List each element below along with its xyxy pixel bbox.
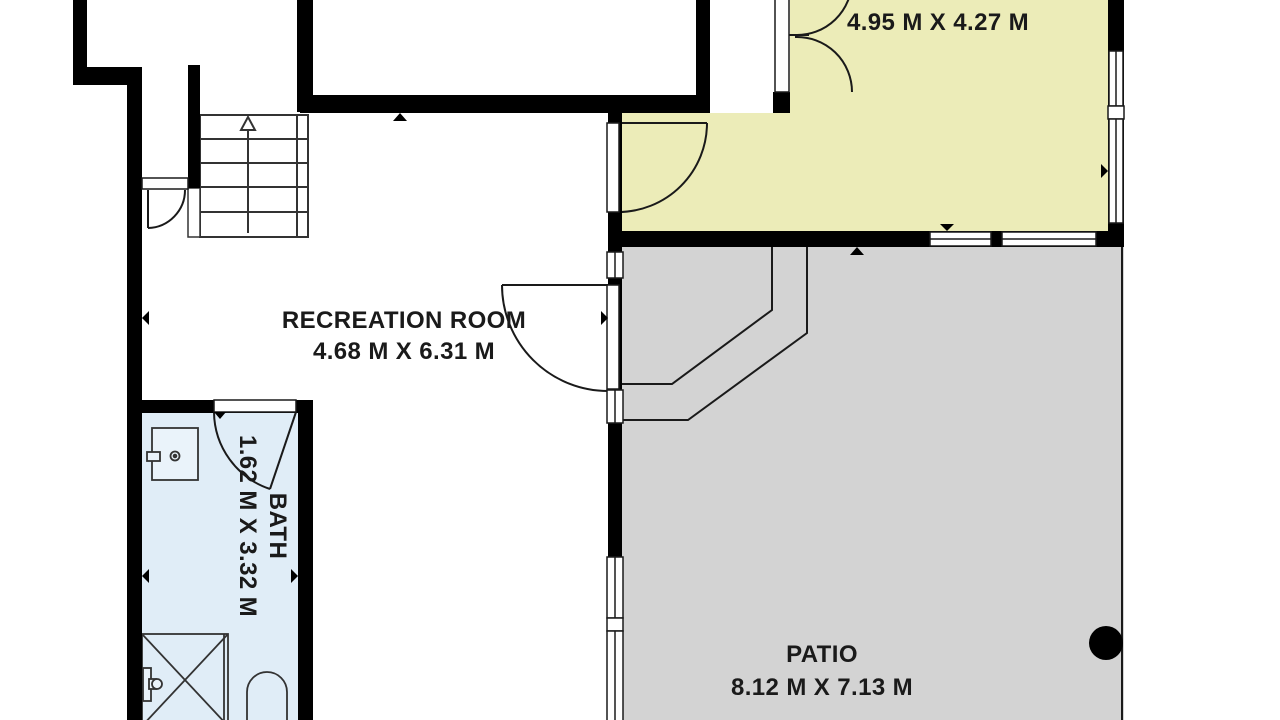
window xyxy=(1002,232,1096,246)
bedroom-label: BEDROOM 4.95 M X 4.27 M xyxy=(847,0,1029,39)
window xyxy=(607,252,623,278)
staircase xyxy=(188,115,308,237)
room-dimensions: 4.68 M X 6.31 M xyxy=(282,336,526,367)
arrow-left-icon xyxy=(142,311,149,325)
window-mullion xyxy=(607,618,623,631)
window xyxy=(1109,51,1123,106)
arrow-up-icon xyxy=(393,113,407,121)
wall xyxy=(188,65,200,188)
recreation-room-label: RECREATION ROOM 4.68 M X 6.31 M xyxy=(282,305,526,367)
floor-plan-viewer: BEDROOM 4.95 M X 4.27 M RECREATION ROOM … xyxy=(0,0,1280,720)
threshold xyxy=(775,0,789,92)
patio-column-dot xyxy=(1089,626,1123,660)
window xyxy=(607,557,623,618)
window-mullion xyxy=(1108,106,1124,119)
stair-stringer xyxy=(188,188,200,237)
threshold xyxy=(607,123,619,212)
room-name: BATH xyxy=(262,435,292,617)
patio-label: PATIO 8.12 M X 7.13 M xyxy=(731,638,913,704)
floor-plan-drawing xyxy=(0,0,1280,720)
wall xyxy=(127,85,142,720)
window xyxy=(607,631,623,720)
threshold xyxy=(142,178,188,189)
room-name: RECREATION ROOM xyxy=(282,305,526,336)
window xyxy=(607,390,623,423)
room-name: BEDROOM xyxy=(847,0,1029,7)
threshold xyxy=(607,285,619,389)
wall xyxy=(73,67,142,85)
wall xyxy=(696,0,710,97)
wall xyxy=(73,0,87,70)
wall xyxy=(298,413,313,720)
window xyxy=(930,232,991,246)
bath-label: BATH 1.62 M X 3.32 M xyxy=(232,435,292,617)
room-name: PATIO xyxy=(731,638,913,671)
window xyxy=(1109,119,1123,223)
room-dimensions: 4.95 M X 4.27 M xyxy=(847,7,1029,39)
wall xyxy=(300,95,710,113)
room-dimensions: 8.12 M X 7.13 M xyxy=(731,671,913,704)
wall xyxy=(773,92,790,113)
hall-door xyxy=(148,190,185,228)
vanity-sink xyxy=(147,428,198,480)
room-dimensions: 1.62 M X 3.32 M xyxy=(232,435,262,617)
threshold xyxy=(214,400,296,412)
